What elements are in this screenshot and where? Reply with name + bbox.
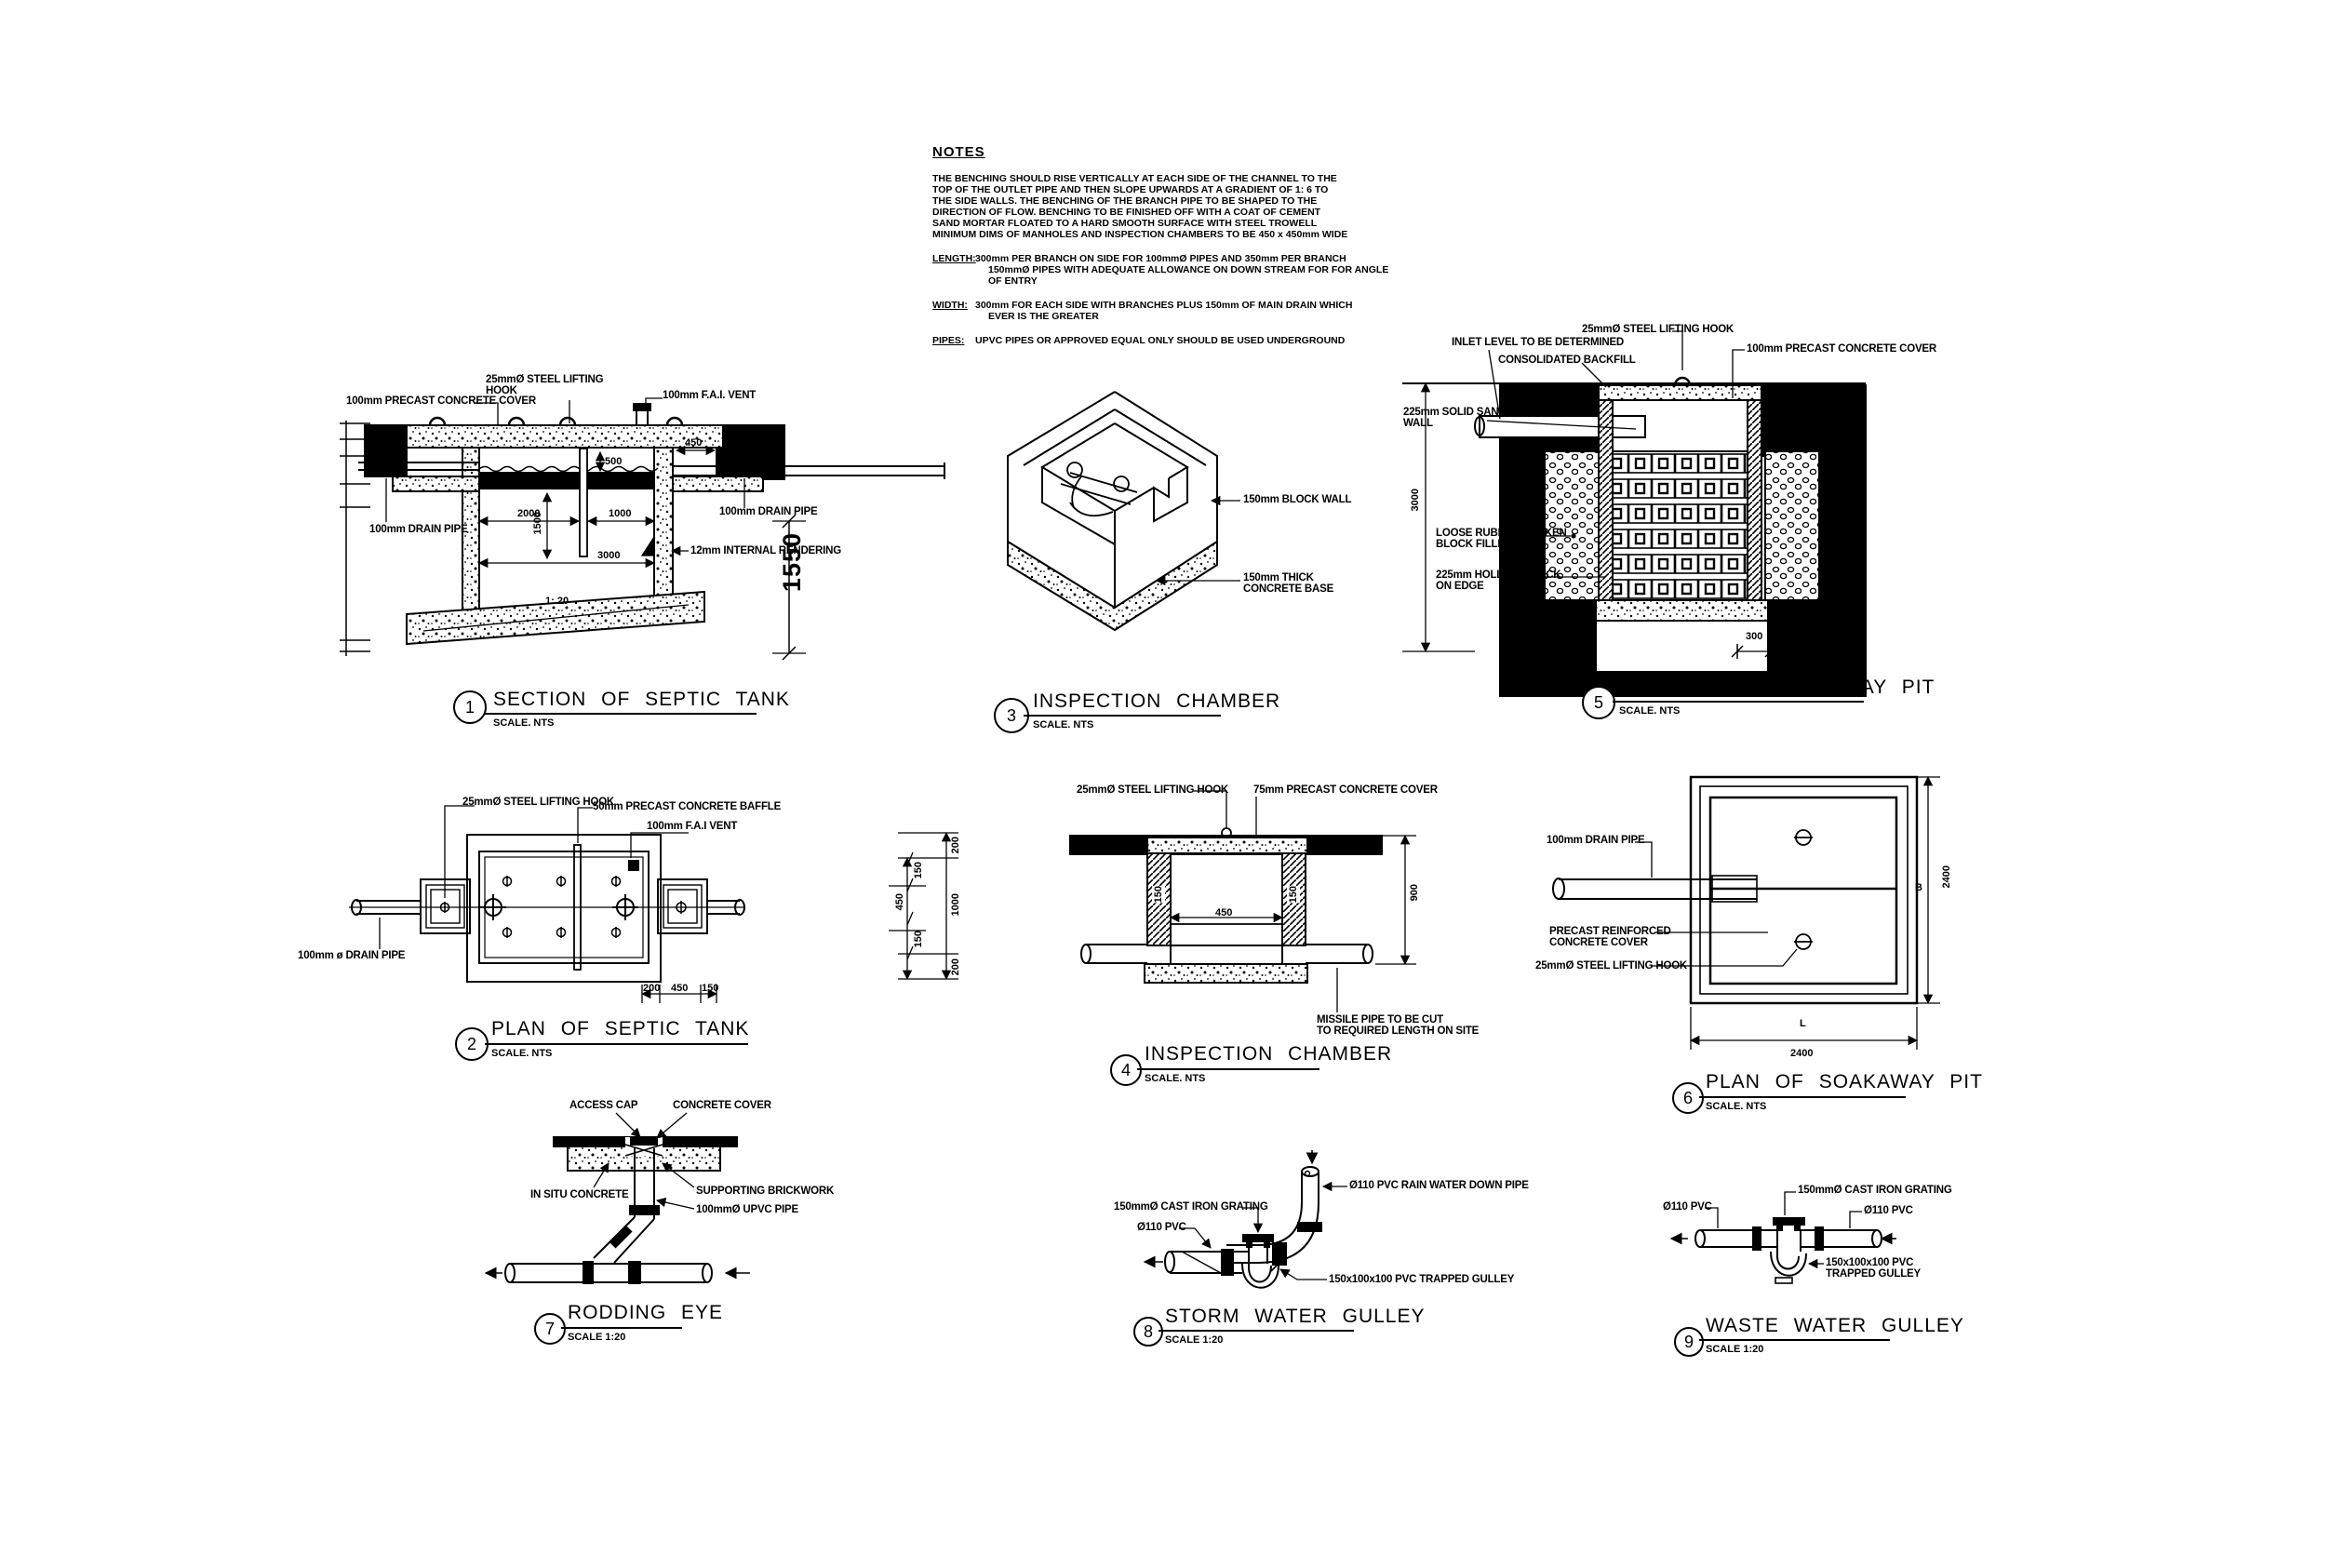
detail-title: SECTION OF SOAKAWAY PIT — [1619, 677, 1935, 699]
notes-pipes-term: PIPES: — [932, 335, 975, 346]
drawing-sheet: NOTES THE BENCHING SHOULD RISE VERTICALL… — [0, 0, 2344, 1568]
notes-body-line: DIRECTION OF FLOW. BENCHING TO BE FINISH… — [932, 207, 1333, 218]
annotation-precast-cover: PRECAST REINFORCEDCONCRETE COVER — [1549, 926, 1671, 948]
notes-body-line: SAND MORTAR FLOATED TO A HARD SMOOTH SUR… — [932, 218, 1333, 229]
dim-150: 150 — [913, 862, 924, 878]
dim-450: 450 — [1215, 907, 1232, 918]
dim-150: 150 — [913, 931, 924, 947]
detail-scale: SCALE. NTS — [1033, 719, 1093, 730]
annotation-concrete-baffle: 50mm PRECAST CONCRETE BAFFLE — [593, 801, 781, 812]
detail-title: SECTION OF SEPTIC TANK — [493, 689, 790, 711]
title-rule — [485, 1043, 748, 1045]
annotation-lifting-hook: 25mmØ STEEL LIFTING HOOK — [1077, 784, 1228, 796]
annotation-upvc-pipe: 100mmØ UPVC PIPE — [696, 1204, 798, 1215]
annotation-lifting-hook: 25mmØ STEEL LIFTINGHOOK — [486, 374, 603, 396]
annotation-concrete-cover: 100mm PRECAST CONCRETE COVER — [346, 395, 536, 407]
soakaway-pit-plan-drawing — [1553, 777, 1940, 1050]
annotation-fai-vent: 100mm F.A.I VENT — [647, 821, 737, 832]
title-rule — [1699, 1096, 1906, 1098]
dim-200: 200 — [950, 837, 961, 853]
notes-body-line: MINIMUM DIMS OF MANHOLES AND INSPECTION … — [932, 229, 1333, 240]
title-rule — [1613, 701, 1864, 703]
detail-scale: SCALE. NTS — [1145, 1073, 1205, 1084]
annotation-rubble-filling: LOOSE RUBBLE BROKENBLOCK FILLING — [1436, 528, 1567, 550]
detail-number-bubble: 6 — [1672, 1082, 1704, 1114]
title-rule — [1159, 1330, 1354, 1332]
annotation-block-wall: 150mm BLOCK WALL — [1243, 494, 1351, 505]
annotation-concrete-cover: CONCRETE COVER — [673, 1100, 771, 1111]
detail-number-bubble: 1 — [453, 690, 487, 724]
detail-title: WASTE WATER GULLEY — [1706, 1315, 1964, 1337]
dim-450: 450 — [894, 893, 905, 910]
annotation-pvc-pipe-left: Ø110 PVC — [1663, 1201, 1712, 1213]
title-rule — [561, 1327, 682, 1329]
annotation-concrete-base: 150mm THICKCONCRETE BASE — [1243, 572, 1333, 595]
detail-title: RODDING EYE — [568, 1302, 723, 1324]
annotation-trapped-gulley: 150x100x100 PVCTRAPPED GULLEY — [1826, 1257, 1921, 1280]
annotation-lifting-hook: 25mmØ STEEL LIFTING HOOK — [1535, 960, 1687, 972]
notes-block: NOTES THE BENCHING SHOULD RISE VERTICALL… — [932, 144, 1333, 346]
dim-450: 450 — [685, 437, 702, 449]
title-rule — [1699, 1339, 1890, 1341]
detail-number-bubble: 5 — [1582, 686, 1615, 719]
dim-150-right: 150 — [1287, 886, 1300, 903]
detail-scale: SCALE 1:20 — [568, 1332, 625, 1343]
dim-900: 900 — [1409, 884, 1420, 901]
dim-1500: 1500 — [532, 512, 543, 534]
detail-scale: SCALE 1:20 — [1165, 1334, 1223, 1346]
annotation-concrete-cover: 75mm PRECAST CONCRETE COVER — [1253, 784, 1438, 796]
detail-title: PLAN OF SEPTIC TANK — [491, 1018, 749, 1040]
dim-150-left: 150 — [1152, 886, 1165, 903]
annotation-drain-pipe-left: 100mm DRAIN PIPE — [369, 524, 467, 535]
annotation-in-situ-concrete: IN SITU CONCRETE — [530, 1189, 628, 1200]
detail-scale: SCALE 1:20 — [1706, 1344, 1763, 1355]
annotation-supporting-brickwork: SUPPORTING BRICKWORK — [696, 1186, 834, 1197]
title-rule — [1137, 1068, 1319, 1070]
annotation-hollow-block: 225mm HOLLOW BLOCKON EDGE — [1436, 570, 1560, 592]
dim-300: 300 — [1746, 631, 1762, 642]
title-rule — [485, 713, 757, 715]
notes-body-line: THE BENCHING SHOULD RISE VERTICALLY AT E… — [932, 173, 1333, 184]
dim-2400-bottom: 2400 — [1790, 1048, 1813, 1059]
notes-pipes-def: UPVC PIPES OR APPROVED EQUAL ONLY SHOULD… — [975, 335, 1345, 346]
notes-body-line: THE SIDE WALLS. THE BENCHING OF THE BRAN… — [932, 195, 1333, 207]
detail-number-bubble: 9 — [1674, 1327, 1704, 1357]
detail-scale: SCALE. NTS — [1706, 1101, 1766, 1112]
annotation-cast-iron-grating: 150mmØ CAST IRON GRATING — [1114, 1201, 1268, 1213]
detail-scale: SCALE. NTS — [493, 717, 554, 729]
detail-number-bubble: 2 — [455, 1027, 489, 1061]
detail-title: INSPECTION CHAMBER — [1033, 690, 1280, 713]
annotation-pipe-cut: MISSILE PIPE TO BE CUTTO REQUIRED LENGTH… — [1317, 1014, 1479, 1037]
annotation-fai-vent: 100mm F.A.I. VENT — [663, 390, 756, 401]
title-rule — [1024, 715, 1221, 717]
dim-1000: 1000 — [950, 893, 961, 916]
dim-3000: 3000 — [597, 550, 620, 561]
annotation-internal-rendering: 12mm INTERNAL RENDERING — [690, 545, 841, 556]
detail-scale: SCALE. NTS — [1619, 705, 1680, 717]
septic-tank-plan-drawing — [349, 806, 958, 1003]
dim-3000: 3000 — [1410, 489, 1421, 511]
notes-title: NOTES — [932, 144, 1333, 160]
dim-150: 150 — [702, 983, 718, 994]
detail-number-bubble: 4 — [1110, 1054, 1142, 1086]
annotation-sandcrete-wall: 225mm SOLID SANDCRETEWALL — [1403, 407, 1542, 429]
detail-number-bubble: 7 — [534, 1313, 566, 1345]
annotation-inlet-level: INLET LEVEL TO BE DETERMINED — [1452, 337, 1624, 348]
dim-1000: 1000 — [609, 508, 631, 519]
detail-title: STORM WATER GULLEY — [1165, 1306, 1425, 1328]
detail-scale: SCALE. NTS — [491, 1048, 552, 1059]
dim-L: L — [1800, 1018, 1806, 1029]
notes-width-def: 300mm FOR EACH SIDE WITH BRANCHES PLUS 1… — [975, 300, 1352, 322]
inspection-chamber-section-drawing — [1070, 791, 1416, 1012]
detail-number-bubble: 8 — [1133, 1317, 1163, 1347]
annotation-drain-pipe-right: 100mm DRAIN PIPE — [719, 506, 817, 517]
annotation-trapped-gulley: 150x100x100 PVC TRAPPED GULLEY — [1329, 1274, 1514, 1285]
annotation-rain-water-pipe: Ø110 PVC RAIN WATER DOWN PIPE — [1349, 1180, 1529, 1191]
dim-1550: 1550 — [778, 532, 807, 592]
annotation-drain-pipe: 100mm ø DRAIN PIPE — [298, 950, 405, 961]
annotation-lifting-hook: 25mmØ STEEL LIFTING HOOK — [1582, 324, 1734, 335]
dim-450: 450 — [671, 983, 688, 994]
notes-length-def: 300mm PER BRANCH ON SIDE FOR 100mmØ PIPE… — [975, 253, 1388, 287]
dim-500: 500 — [605, 456, 622, 467]
dim-2400-right: 2400 — [1941, 865, 1952, 888]
annotation-pvc-pipe: Ø110 PVC — [1137, 1222, 1186, 1233]
annotation-pvc-pipe-right: Ø110 PVC — [1864, 1205, 1913, 1216]
dim-200: 200 — [950, 958, 961, 975]
dim-B: B — [1915, 882, 1922, 893]
dim-slope: 1: 20 — [545, 596, 569, 607]
detail-title: INSPECTION CHAMBER — [1145, 1043, 1392, 1065]
annotation-cast-iron-grating: 150mmØ CAST IRON GRATING — [1798, 1185, 1952, 1196]
annotation-drain-pipe: 100mm DRAIN PIPE — [1547, 835, 1644, 846]
notes-length-term: LENGTH: — [932, 253, 975, 287]
detail-title: PLAN OF SOAKAWAY PIT — [1706, 1071, 1983, 1093]
annotation-backfill: CONSOLIDATED BACKFILL — [1498, 355, 1636, 366]
storm-water-gulley-drawing — [1145, 1150, 1347, 1288]
soakaway-pit-section-drawing — [1402, 331, 1866, 696]
annotation-lifting-hook: 25mmØ STEEL LIFTING HOOK — [462, 797, 614, 808]
dim-200: 200 — [643, 983, 660, 994]
notes-body-line: TOP OF THE OUTLET PIPE AND THEN SLOPE UP… — [932, 184, 1333, 195]
notes-width-term: WIDTH: — [932, 300, 975, 322]
annotation-access-cap: ACCESS CAP — [569, 1100, 637, 1111]
inspection-chamber-iso-drawing — [1008, 392, 1240, 630]
annotation-concrete-cover: 100mm PRECAST CONCRETE COVER — [1747, 343, 1936, 355]
